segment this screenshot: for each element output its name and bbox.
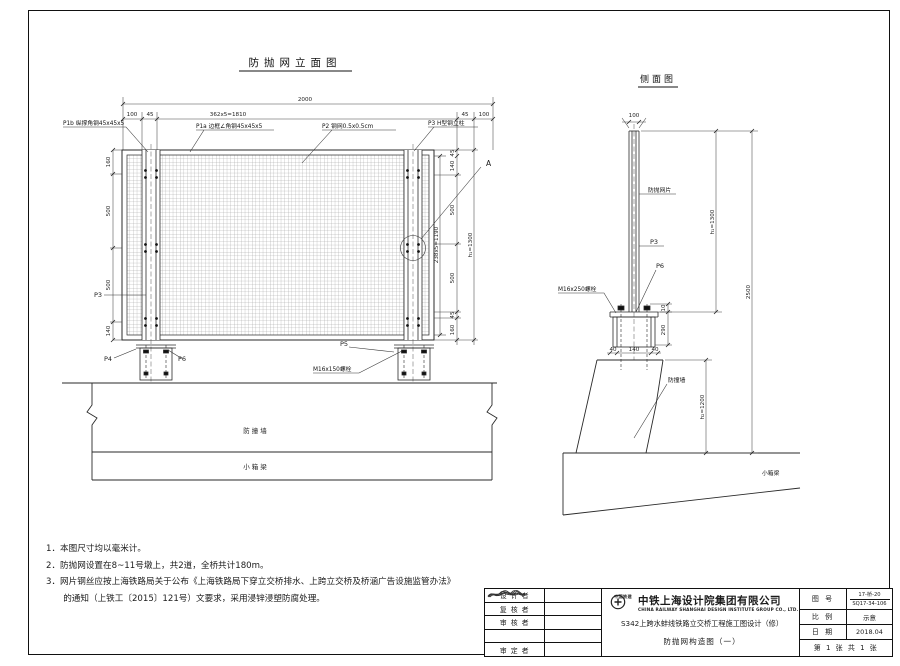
detail-marker-A: A [486, 159, 492, 168]
dim-left-140: 140 [106, 325, 112, 336]
side-label-m16x250: M16x250螺栓 [558, 285, 597, 293]
label-p6: P6 [178, 355, 186, 363]
field-drawing-no-label: 图 号 [800, 589, 847, 609]
signature-designer [545, 589, 601, 602]
title-block-signatures: 设 计 者 复 核 者 审 核 者 [485, 589, 602, 656]
field-scale-label: 比 例 [800, 610, 847, 624]
role-blank [485, 630, 545, 643]
side-label-wall: 防撞墙 [668, 376, 686, 384]
side-dim-2500: 2500 [746, 284, 752, 299]
field-date-label: 日 期 [800, 625, 847, 639]
drawing-title: 防抛网构造图（一） [602, 636, 802, 647]
role-checker: 复 核 者 [485, 603, 545, 616]
label-p3: P3 [94, 291, 102, 299]
side-dim-100: 100 [629, 113, 640, 119]
drawing-sheet: 防抛网立面图 2000 100 45 362x5=1810 45 100 [0, 0, 900, 666]
label-m16x150: M16x150螺栓 [313, 365, 352, 373]
dim-rseg-160: 160 [450, 324, 456, 335]
signature-checker [545, 603, 601, 616]
elevation-left-dim-chain [110, 148, 122, 342]
wall-girder-bands [62, 383, 497, 480]
right-post [404, 144, 422, 382]
title-block: 设 计 者 复 核 者 审 核 者 [484, 588, 893, 657]
role-approver: 审 定 者 [485, 643, 545, 656]
dim-left-160: 160 [106, 156, 112, 167]
mesh-panel [122, 150, 434, 340]
dim-left-45: 45 [146, 112, 154, 118]
field-date-value: 2018.04 [847, 625, 892, 639]
side-dim-140: 140 [629, 347, 640, 353]
dim-rseg-140: 140 [450, 160, 456, 171]
side-girder [563, 453, 800, 515]
title-block-center: 中国铁建 中铁上海设计院集团有限公司 CHINA RAILWAY SHANGHA… [602, 589, 800, 656]
side-label-p6: P6 [656, 262, 664, 270]
dim-rseg-45a: 45 [450, 149, 456, 157]
company-name: 中铁上海设计院集团有限公司 [638, 593, 798, 608]
company-logo-icon [610, 594, 626, 610]
label-p1a: P1a 边框∠角钢45x45x5 [196, 122, 263, 130]
side-dim-h1: h₁=1300 [710, 209, 716, 234]
role-reviewer: 审 核 者 [485, 616, 545, 629]
side-title: 侧面图 [640, 73, 676, 85]
label-p4: P4 [104, 355, 112, 363]
dim-right-100: 100 [479, 112, 490, 118]
dim-mesh-1810: 362x5=1810 [210, 112, 247, 118]
signature-approver [545, 643, 601, 656]
label-crash-wall: 防撞墙 [243, 426, 269, 435]
elevation-title: 防抛网立面图 [249, 56, 342, 69]
title-block-fields: 图 号 17-桥-20 SQ17-34-106 比 例 示意 日 期 2018.… [800, 589, 892, 656]
field-drawing-no-1: 17-桥-20 [850, 591, 890, 600]
side-wall [576, 360, 663, 453]
side-post [629, 124, 639, 360]
side-dim-40b: 40 [651, 347, 659, 353]
dim-rseg-500a: 500 [450, 204, 456, 215]
label-box-girder: 小箱梁 [243, 462, 269, 471]
field-drawing-no-2: SQ17-34-106 [850, 600, 890, 607]
side-label-mesh: 防抛网片 [648, 186, 671, 194]
dim-right-45: 45 [461, 112, 469, 118]
side-label-girder: 小箱梁 [762, 469, 780, 477]
dim-right-1190: 238x5=1190 [434, 226, 440, 263]
side-dim-h2: h₂=1200 [700, 394, 706, 419]
label-p2: P2 钢网0.5x0.5cm [322, 122, 374, 130]
dim-overall-2000: 2000 [298, 97, 313, 103]
company-name-en: CHINA RAILWAY SHANGHAI DESIGN INSTITUTE … [638, 607, 800, 612]
note-line-4: 的通知（上铁工〔2015〕121号）文要求，采用浸锌浸塑防腐处理。 [46, 591, 496, 608]
side-dim-290: 290 [661, 324, 667, 335]
left-post [142, 144, 160, 382]
side-dim-40a: 40 [609, 347, 617, 353]
side-label-p3: P3 [650, 238, 658, 246]
project-title: S342上跨水蚌线铁路立交桥工程施工图设计（修） [602, 619, 802, 629]
side-dim-10: 10 [661, 304, 667, 312]
label-p5: P5 [340, 340, 348, 348]
label-p1b: P1b 纵撑角钢45x45x5 [63, 119, 125, 127]
dim-rseg-45b: 45 [450, 311, 456, 319]
dim-left-100: 100 [127, 112, 138, 118]
label-p3-column: P3 H型钢立柱 [428, 119, 465, 127]
dim-left-500a: 500 [106, 205, 112, 216]
dim-h1-1300: h₁=1300 [468, 232, 474, 257]
field-sheet-number: 第 1 张 共 1 张 [800, 640, 892, 656]
side-view: 侧面图 100 [558, 73, 800, 515]
note-line-3: 3．网片钢丝应按上海铁路局关于公布《上海铁路局下穿立交桥排水、上跨立交桥及桥涵广… [46, 574, 496, 591]
dim-left-500b: 500 [106, 279, 112, 290]
general-notes: 1．本图尺寸均以毫米计。 2．防抛网设置在8~11号墩上，共2道，全桥共计180… [46, 541, 496, 607]
company-logo: 中国铁建 [610, 594, 636, 600]
dim-rseg-500b: 500 [450, 272, 456, 283]
field-scale-value: 示意 [847, 610, 892, 624]
note-line-2: 2．防抛网设置在8~11号墩上，共2道，全桥共计180m。 [46, 558, 496, 575]
note-line-1: 1．本图尺寸均以毫米计。 [46, 541, 496, 558]
signature-extra [545, 630, 601, 643]
signature-reviewer [545, 616, 601, 629]
elevation-view: 防抛网立面图 2000 100 45 362x5=1810 45 100 [62, 56, 497, 480]
